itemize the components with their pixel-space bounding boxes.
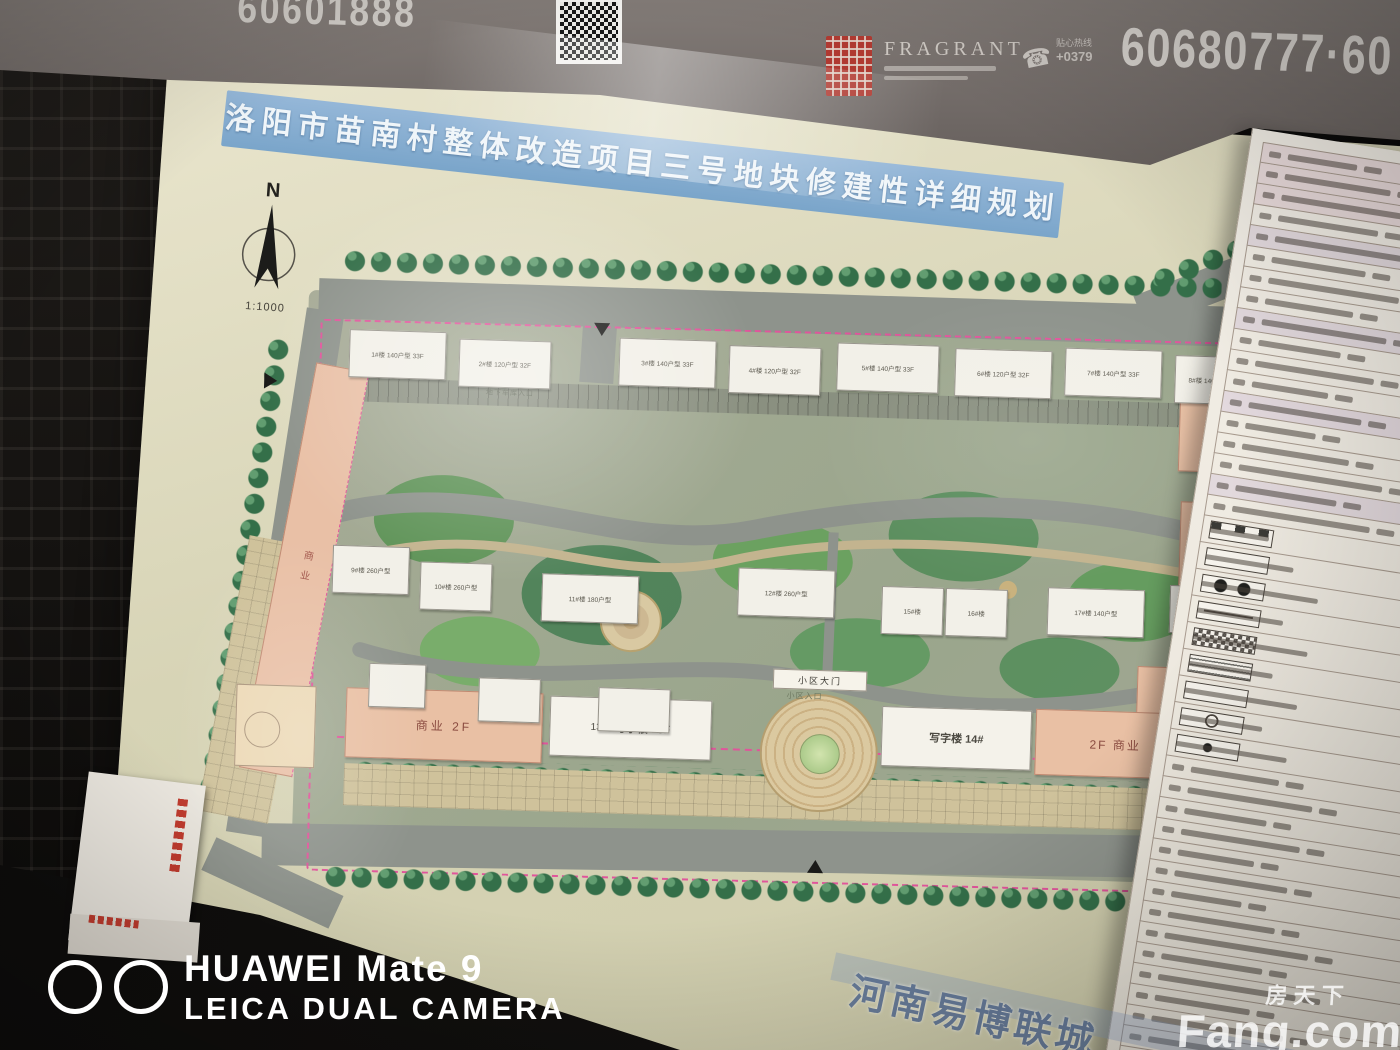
red-text-row	[88, 915, 139, 929]
building-label: 3#楼 140户型 33F	[641, 357, 694, 369]
residential-building-top: 3#楼 140户型 33F	[618, 338, 716, 389]
illegible-text-blur	[1136, 992, 1149, 1000]
residential-building-top: 5#楼 140户型 33F	[836, 342, 939, 393]
illegible-text-blur	[1266, 171, 1279, 179]
illegible-text-blur	[1260, 862, 1279, 871]
residential-building-cluster	[597, 687, 670, 733]
building-label: 2#楼 120户型 32F	[478, 358, 531, 370]
illegible-text-blur	[1306, 848, 1325, 857]
commercial-mid-label: 2F 商业	[1089, 735, 1141, 754]
illegible-text-blur	[1249, 274, 1262, 282]
building-label: 11#楼 180户型	[569, 593, 612, 604]
phone-handset-icon: ☎	[1019, 41, 1054, 76]
residential-building-top: 4#楼 120户型 32F	[728, 345, 821, 396]
entrance-arrow-north	[594, 323, 610, 336]
qr-pattern	[560, 2, 618, 60]
illegible-text-blur	[1273, 822, 1292, 831]
residential-building-top: 1#楼 140户型 33F	[348, 329, 446, 380]
brand-script-blur	[884, 76, 968, 80]
west-commercial-label: 商业	[293, 549, 315, 591]
illegible-text-blur	[1252, 254, 1265, 262]
building-label: 12#楼 260户型	[765, 587, 808, 598]
camera-model: HUAWEI Mate 9	[184, 948, 566, 991]
illegible-text-blur	[1281, 930, 1300, 939]
illegible-text-blur	[1239, 337, 1252, 345]
illegible-text-blur	[1145, 929, 1158, 937]
residential-building-mid: 12#楼 260户型	[737, 567, 835, 618]
residential-building-mid: 10#楼 260户型	[419, 561, 492, 611]
gate-label-box: 小区大门	[773, 669, 868, 692]
illegible-text-blur	[1216, 482, 1229, 490]
paper-stack	[68, 771, 206, 954]
illegible-text-blur	[1347, 354, 1366, 363]
illegible-text-blur	[1171, 891, 1242, 908]
illegible-text-blur	[1159, 846, 1172, 854]
illegible-text-blur	[1364, 166, 1383, 175]
illegible-text-blur	[1168, 784, 1181, 792]
illegible-text-blur	[1223, 440, 1236, 448]
illegible-text-blur	[1393, 340, 1400, 349]
illegible-text-blur	[1294, 889, 1313, 898]
illegible-text-blur	[1269, 151, 1282, 159]
illegible-text-blur	[1285, 781, 1304, 790]
illegible-text-blur	[1376, 528, 1395, 537]
brand-block: FRAGRANT	[884, 38, 1024, 80]
illegible-text-blur	[1233, 378, 1246, 386]
entrance-label: 小区入口	[786, 690, 822, 702]
fang-watermark: 房天下 Fang.com	[1175, 978, 1400, 1050]
residential-building-mid: 15#楼	[881, 586, 944, 636]
illegible-text-blur	[1319, 808, 1338, 817]
residential-building-cluster	[478, 677, 541, 723]
commercial-left-label: 商业 2F	[416, 716, 473, 735]
building-label: 7#楼 140户型 33F	[1087, 367, 1140, 379]
camera-watermark-text: HUAWEI Mate 9 LEICA DUAL CAMERA	[184, 948, 566, 1026]
illegible-text-blur	[1213, 503, 1226, 511]
building-label: 6#楼 120户型 32F	[977, 368, 1030, 380]
building-label: 4#楼 120户型 32F	[748, 365, 801, 377]
illegible-text-blur	[1388, 488, 1400, 497]
residential-building-mid: 11#楼 180户型	[541, 573, 639, 624]
illegible-text-blur	[1172, 763, 1185, 771]
residential-building-top: 6#楼 120户型 32F	[954, 348, 1052, 399]
illegible-text-blur	[1256, 233, 1269, 241]
illegible-text-blur	[1243, 316, 1256, 324]
illegible-text-blur	[1226, 420, 1239, 428]
red-text-column	[169, 799, 188, 876]
building-label: 10#楼 260户型	[434, 581, 477, 592]
brand-name: FRAGRANT	[884, 38, 1024, 61]
illegible-text-blur	[1152, 888, 1165, 896]
camera-watermark: HUAWEI Mate 9 LEICA DUAL CAMERA	[48, 948, 566, 1026]
residential-building-mid: 16#楼	[945, 588, 1008, 638]
building-label: 15#楼	[903, 606, 921, 617]
area-code: +0379	[1056, 49, 1093, 65]
residential-building-top: 2#楼 120户型 32F	[458, 339, 551, 390]
hotline-label: 贴心热线	[1056, 38, 1093, 49]
illegible-text-blur	[1246, 295, 1259, 303]
camera-lens-icon	[114, 960, 168, 1014]
illegible-text-blur	[1359, 313, 1378, 322]
illegible-text-blur	[1236, 357, 1249, 365]
building-label: 17#楼 140户型	[1074, 607, 1117, 618]
illegible-text-blur	[1149, 909, 1162, 917]
fang-logo-text: Fang.com	[1175, 1004, 1400, 1050]
residential-building-mid: 17#楼 140户型	[1047, 587, 1145, 638]
illegible-text-blur	[1165, 805, 1178, 813]
building-label: 1#楼 140户型 33F	[371, 349, 424, 361]
illegible-text-blur	[1262, 192, 1275, 200]
residential-building-top: 7#楼 140户型 33F	[1064, 348, 1162, 399]
red-seal-logo	[826, 36, 872, 96]
entrance-arrow-south	[807, 860, 823, 873]
partial-phone-number: 60601888	[237, 0, 417, 37]
office-14-block: 写字楼 14#	[880, 706, 1032, 771]
illegible-text-blur	[1245, 423, 1316, 440]
phone-number: 60680777·60	[1120, 16, 1394, 87]
illegible-text-blur	[1384, 232, 1400, 241]
illegible-text-blur	[1380, 380, 1399, 389]
hotline-block: 贴心热线 +0379	[1056, 38, 1093, 64]
illegible-text-blur	[1155, 867, 1168, 875]
illegible-text-blur	[1259, 212, 1272, 220]
camera-brand: LEICA DUAL CAMERA	[184, 991, 566, 1027]
illegible-text-blur	[1142, 950, 1155, 958]
illegible-text-blur	[1248, 903, 1267, 912]
illegible-text-blur	[1322, 435, 1341, 444]
residential-building-cluster	[368, 663, 426, 709]
building-label: 16#楼	[967, 608, 985, 619]
qr-code-icon	[556, 0, 622, 64]
entrance-arrow-west	[264, 372, 277, 388]
illegible-text-blur	[1139, 971, 1152, 979]
residential-building-mid: 9#楼 260户型	[332, 545, 410, 595]
illegible-text-blur	[1372, 273, 1391, 282]
photo-of-site-plan-board: 60601888 FRAGRANT ☎ 贴心热线 +0379 60680777·…	[0, 0, 1400, 1050]
illegible-text-blur	[1162, 826, 1175, 834]
illegible-text-blur	[1220, 461, 1233, 469]
illegible-text-blur	[1229, 399, 1242, 407]
kindergarten-block	[234, 684, 317, 768]
illegible-text-blur	[1355, 461, 1374, 470]
office-14-label: 写字楼 14#	[929, 730, 984, 748]
illegible-text-blur	[1334, 394, 1353, 403]
illegible-text-blur	[1314, 956, 1333, 965]
brand-subtitle-blur	[884, 66, 996, 71]
garage-entrance-label: 地下车库入口	[486, 387, 534, 399]
camera-lens-icon	[48, 960, 102, 1014]
building-label: 5#楼 140户型 33F	[862, 362, 915, 374]
illegible-text-blur	[1343, 502, 1362, 511]
illegible-text-blur	[1368, 421, 1387, 430]
building-label: 9#楼 260户型	[351, 564, 391, 575]
